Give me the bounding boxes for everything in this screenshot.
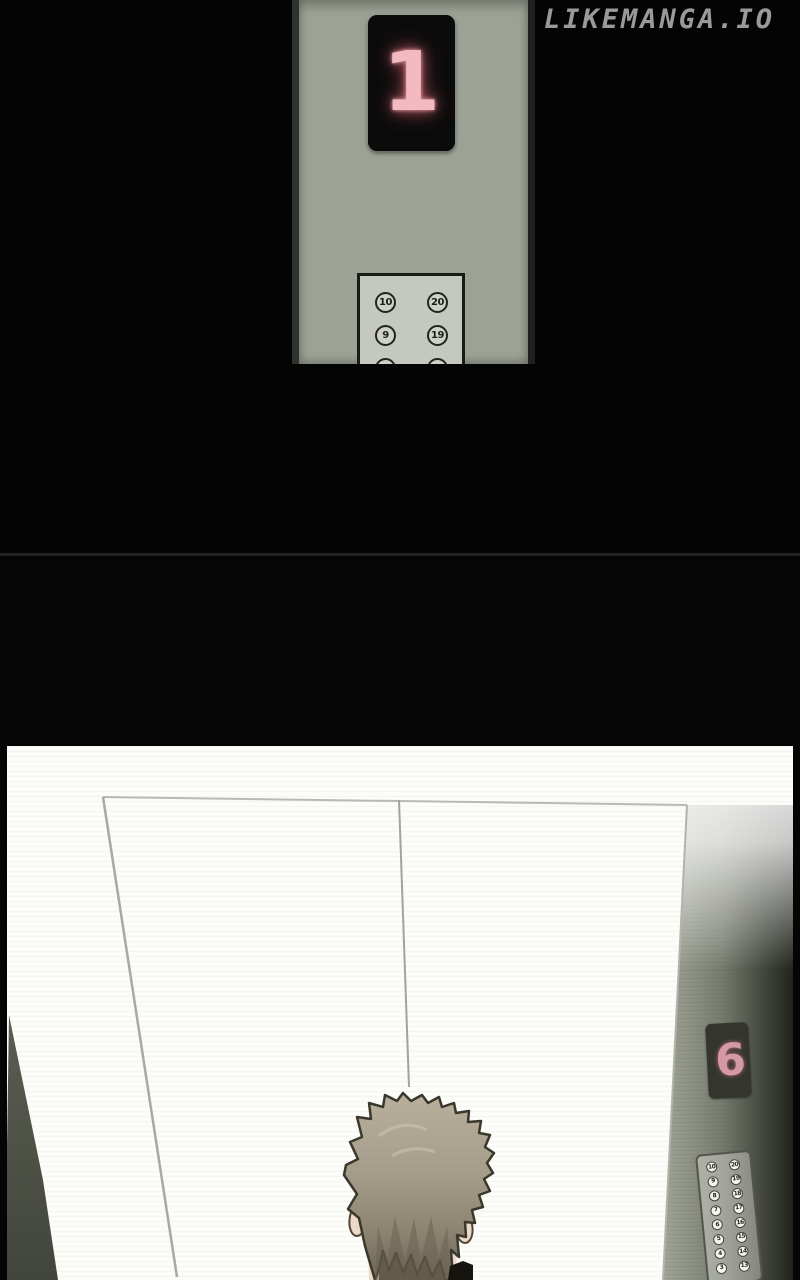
elevator-button: 20 [427,292,448,313]
hall-keypad: 10 20 9 19 8 18 [357,273,465,364]
floor-indicator-display: 1 [368,15,455,151]
panel-right-edge [528,0,535,364]
car-panel-right-column: 20 19 18 17 16 15 14 13 [729,1159,752,1280]
car-floor-number: 6 [710,1038,747,1084]
corner-shadow-wedge [7,1015,58,1280]
floor-number: 1 [383,42,440,124]
comic-image-elevator-interior[interactable]: 6 10 9 8 7 6 5 [0,556,800,1280]
elevator-button: 3 [715,1262,727,1274]
elevator-button: 15 [736,1231,748,1243]
door-right-edge [663,805,687,1280]
manga-reader-page: 1 10 20 9 19 8 18 LIKEMANGA.IO [0,0,800,1280]
panel-left-edge [292,0,299,364]
elevator-button: 20 [729,1159,741,1171]
door-center-gap [399,800,409,1087]
elevator-interior-scene: 6 10 9 8 7 6 5 [7,746,793,1280]
elevator-button: 10 [375,292,396,313]
elevator-button: 8 [375,358,396,364]
door-top-edge [103,797,687,805]
elevator-button: 9 [375,325,396,346]
car-floor-indicator: 6 [705,1022,752,1099]
elevator-button: 18 [427,358,448,364]
elevator-button: 13 [738,1260,750,1272]
elevator-button: 6 [711,1219,723,1231]
site-watermark: LIKEMANGA.IO [544,4,775,35]
elevator-button: 7 [710,1204,722,1216]
elevator-button: 16 [734,1216,746,1228]
elevator-hall-panel: 1 10 20 9 19 8 18 [292,0,535,364]
character-head [344,1093,494,1280]
elevator-button: 10 [706,1161,718,1173]
comic-image-hall-panel[interactable]: 1 10 20 9 19 8 18 [0,0,800,553]
elevator-button: 14 [737,1245,749,1257]
elevator-button: 5 [713,1233,725,1245]
scene-linework [7,746,793,1280]
elevator-button: 19 [730,1173,742,1185]
elevator-button: 9 [707,1175,719,1187]
door-left-edge [103,797,177,1277]
car-panel-left-column: 10 9 8 7 6 5 4 3 [706,1161,729,1280]
elevator-button: 4 [714,1248,726,1260]
elevator-button: 8 [709,1190,721,1202]
elevator-button: 19 [427,325,448,346]
elevator-button: 17 [733,1202,745,1214]
elevator-button: 18 [731,1188,743,1200]
